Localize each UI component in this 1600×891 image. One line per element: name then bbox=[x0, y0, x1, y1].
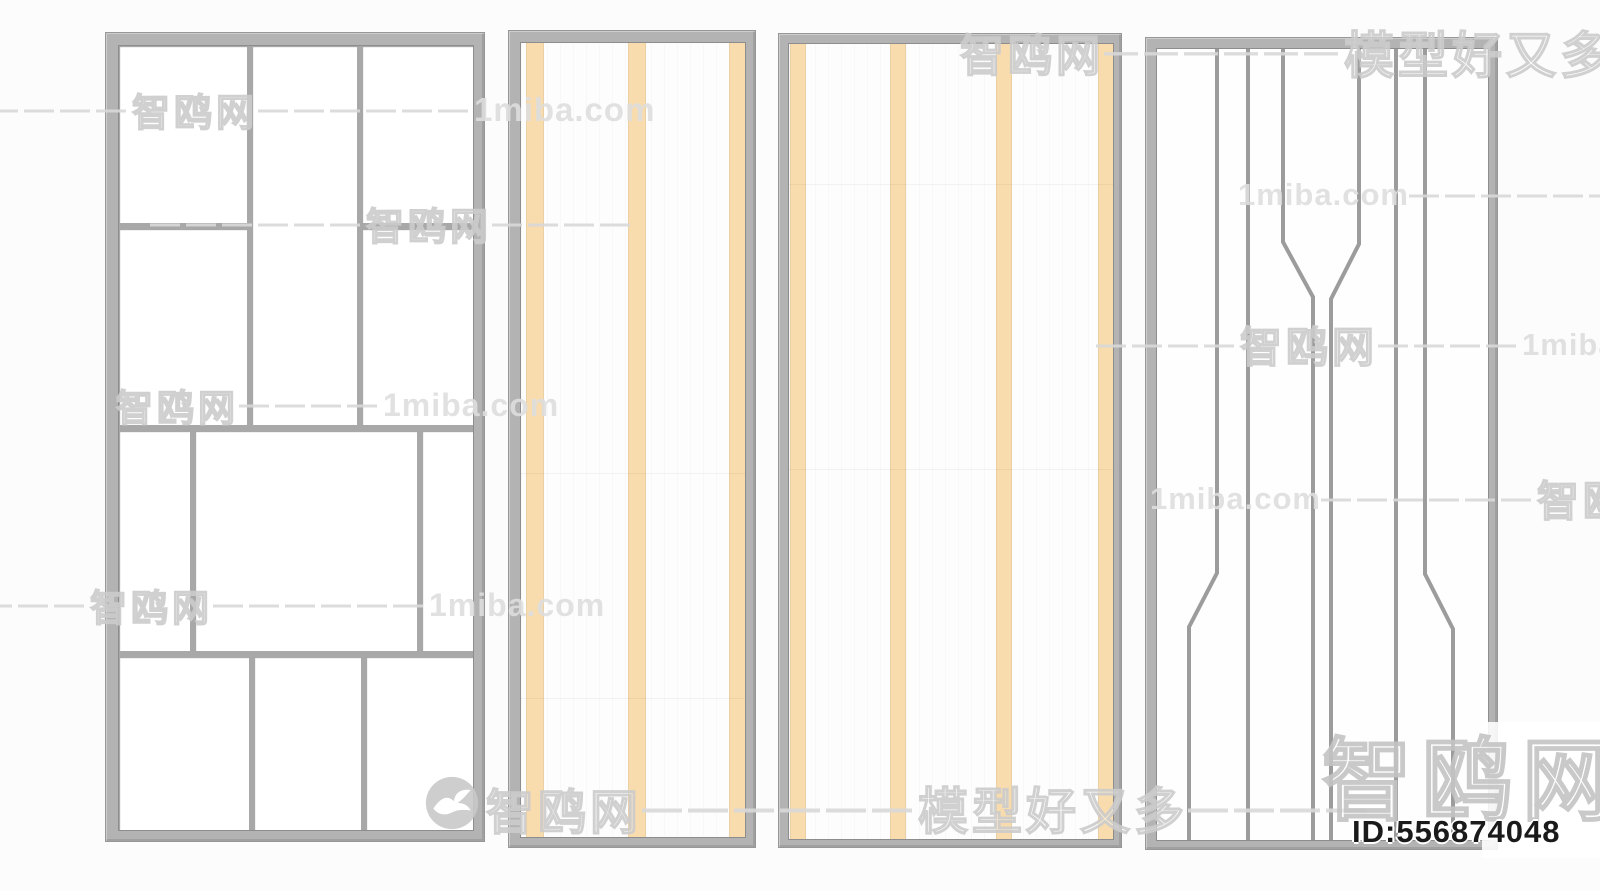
grid-cell bbox=[363, 230, 474, 425]
model-id-label: ID:556874048 bbox=[1352, 814, 1561, 850]
line-pattern bbox=[1157, 49, 1489, 841]
panel-grid-screen-face bbox=[118, 45, 474, 831]
grid-cell bbox=[363, 47, 474, 223]
pattern-line-bent-left bbox=[1189, 49, 1217, 841]
panel-striped-screen-narrow bbox=[508, 30, 756, 848]
panel-seam-line bbox=[789, 184, 1113, 185]
orange-stripe bbox=[890, 44, 906, 839]
orange-stripe bbox=[526, 43, 544, 837]
orange-stripe bbox=[729, 43, 746, 837]
panel-seam-line bbox=[521, 698, 745, 699]
panel-seam-line bbox=[789, 469, 1113, 470]
panel-striped-screen-wide-face bbox=[788, 43, 1114, 840]
orange-stripe bbox=[628, 43, 646, 837]
panel-grid-screen bbox=[105, 32, 485, 842]
grid-cell bbox=[120, 230, 247, 425]
site-name-watermark: 智鸥网 bbox=[1537, 468, 1600, 529]
grid-cell bbox=[255, 658, 361, 830]
grid-cell bbox=[423, 432, 474, 651]
site-url-watermark: 1miba.com bbox=[1522, 327, 1600, 363]
grid-cell bbox=[253, 47, 357, 425]
pattern-line-funnel-left bbox=[1283, 49, 1313, 841]
pattern-line-bent-right bbox=[1425, 49, 1453, 841]
grid-cell bbox=[196, 432, 417, 651]
panel-seam-line bbox=[521, 473, 745, 474]
panel-striped-screen-narrow-face bbox=[520, 42, 746, 838]
orange-stripe bbox=[996, 44, 1012, 839]
orange-stripe bbox=[1098, 44, 1114, 839]
panel-striped-screen-wide bbox=[778, 33, 1122, 848]
watermark-dashes: ——— bbox=[0, 588, 90, 622]
panel-line-screen bbox=[1145, 37, 1498, 850]
pattern-line-funnel-right bbox=[1331, 49, 1359, 841]
grid-cell bbox=[120, 432, 190, 651]
panel-line-screen-face bbox=[1156, 48, 1489, 841]
grid-cell bbox=[120, 658, 249, 830]
model-preview-image: ———— 智鸥网 —————— 1miba.com —————— 智鸥网 ———… bbox=[0, 0, 1600, 891]
grid-cell bbox=[120, 47, 247, 223]
orange-stripe bbox=[790, 44, 806, 839]
grid-cell bbox=[367, 658, 474, 830]
